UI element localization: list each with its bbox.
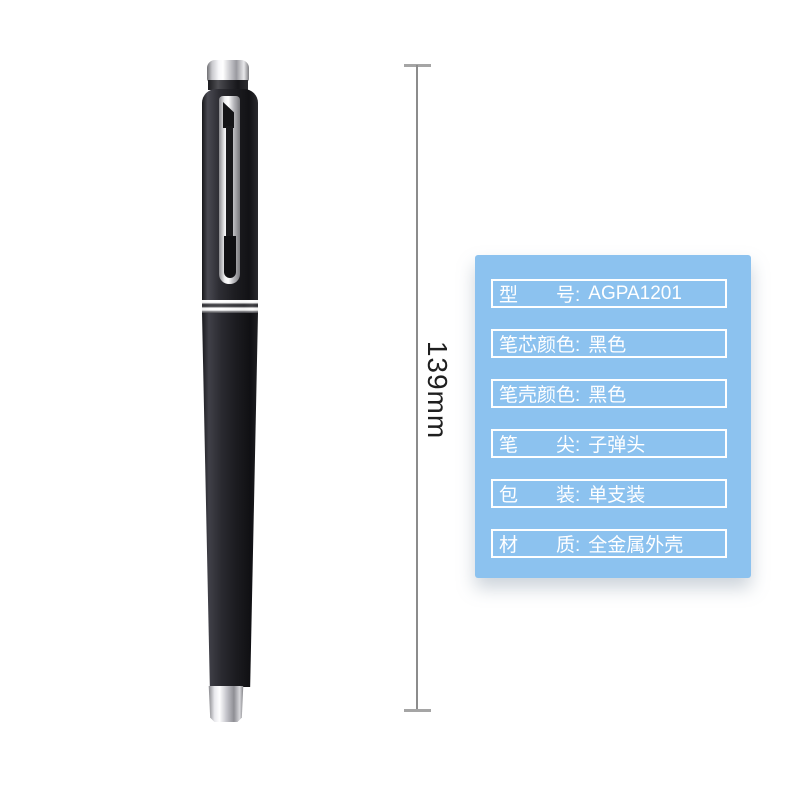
spec-value: 单支装 xyxy=(588,480,645,507)
pen-tip xyxy=(208,686,244,722)
pen-barrel xyxy=(202,313,258,687)
spec-label: 笔芯颜色: xyxy=(499,330,580,357)
spec-label: 包 装: xyxy=(499,480,580,507)
spec-value: 黑色 xyxy=(588,380,626,407)
spec-label: 型 号: xyxy=(499,280,580,307)
product-detail-image: 139mm 型 号: AGPA1201 笔芯颜色: 黑色 笔壳颜色: 黑色 笔 … xyxy=(0,0,800,800)
spec-row-material: 材 质: 全金属外壳 xyxy=(491,529,727,558)
spec-box: 型 号: AGPA1201 笔芯颜色: 黑色 笔壳颜色: 黑色 笔 尖: 子弹头… xyxy=(475,255,751,578)
spec-row-nib: 笔 尖: 子弹头 xyxy=(491,429,727,458)
dimension-line xyxy=(416,65,418,711)
spec-row-shell-color: 笔壳颜色: 黑色 xyxy=(491,379,727,408)
spec-row-refill-color: 笔芯颜色: 黑色 xyxy=(491,329,727,358)
spec-value: 全金属外壳 xyxy=(588,530,683,557)
spec-row-packaging: 包 装: 单支装 xyxy=(491,479,727,508)
spec-value: 黑色 xyxy=(588,330,626,357)
spec-label: 笔 尖: xyxy=(499,430,580,457)
spec-label: 笔壳颜色: xyxy=(499,380,580,407)
dimension-bottom-cap xyxy=(404,709,431,712)
spec-value: AGPA1201 xyxy=(588,283,682,305)
pen-cap-finial xyxy=(207,60,249,82)
pen-center-ring xyxy=(202,300,258,314)
spec-row-model: 型 号: AGPA1201 xyxy=(491,279,727,308)
pen-clip-inner-line xyxy=(226,126,233,238)
pen-clip-end-tab xyxy=(224,236,236,278)
spec-value: 子弹头 xyxy=(588,430,645,457)
spec-label: 材 质: xyxy=(499,530,580,557)
dimension-label: 139mm xyxy=(422,330,452,450)
